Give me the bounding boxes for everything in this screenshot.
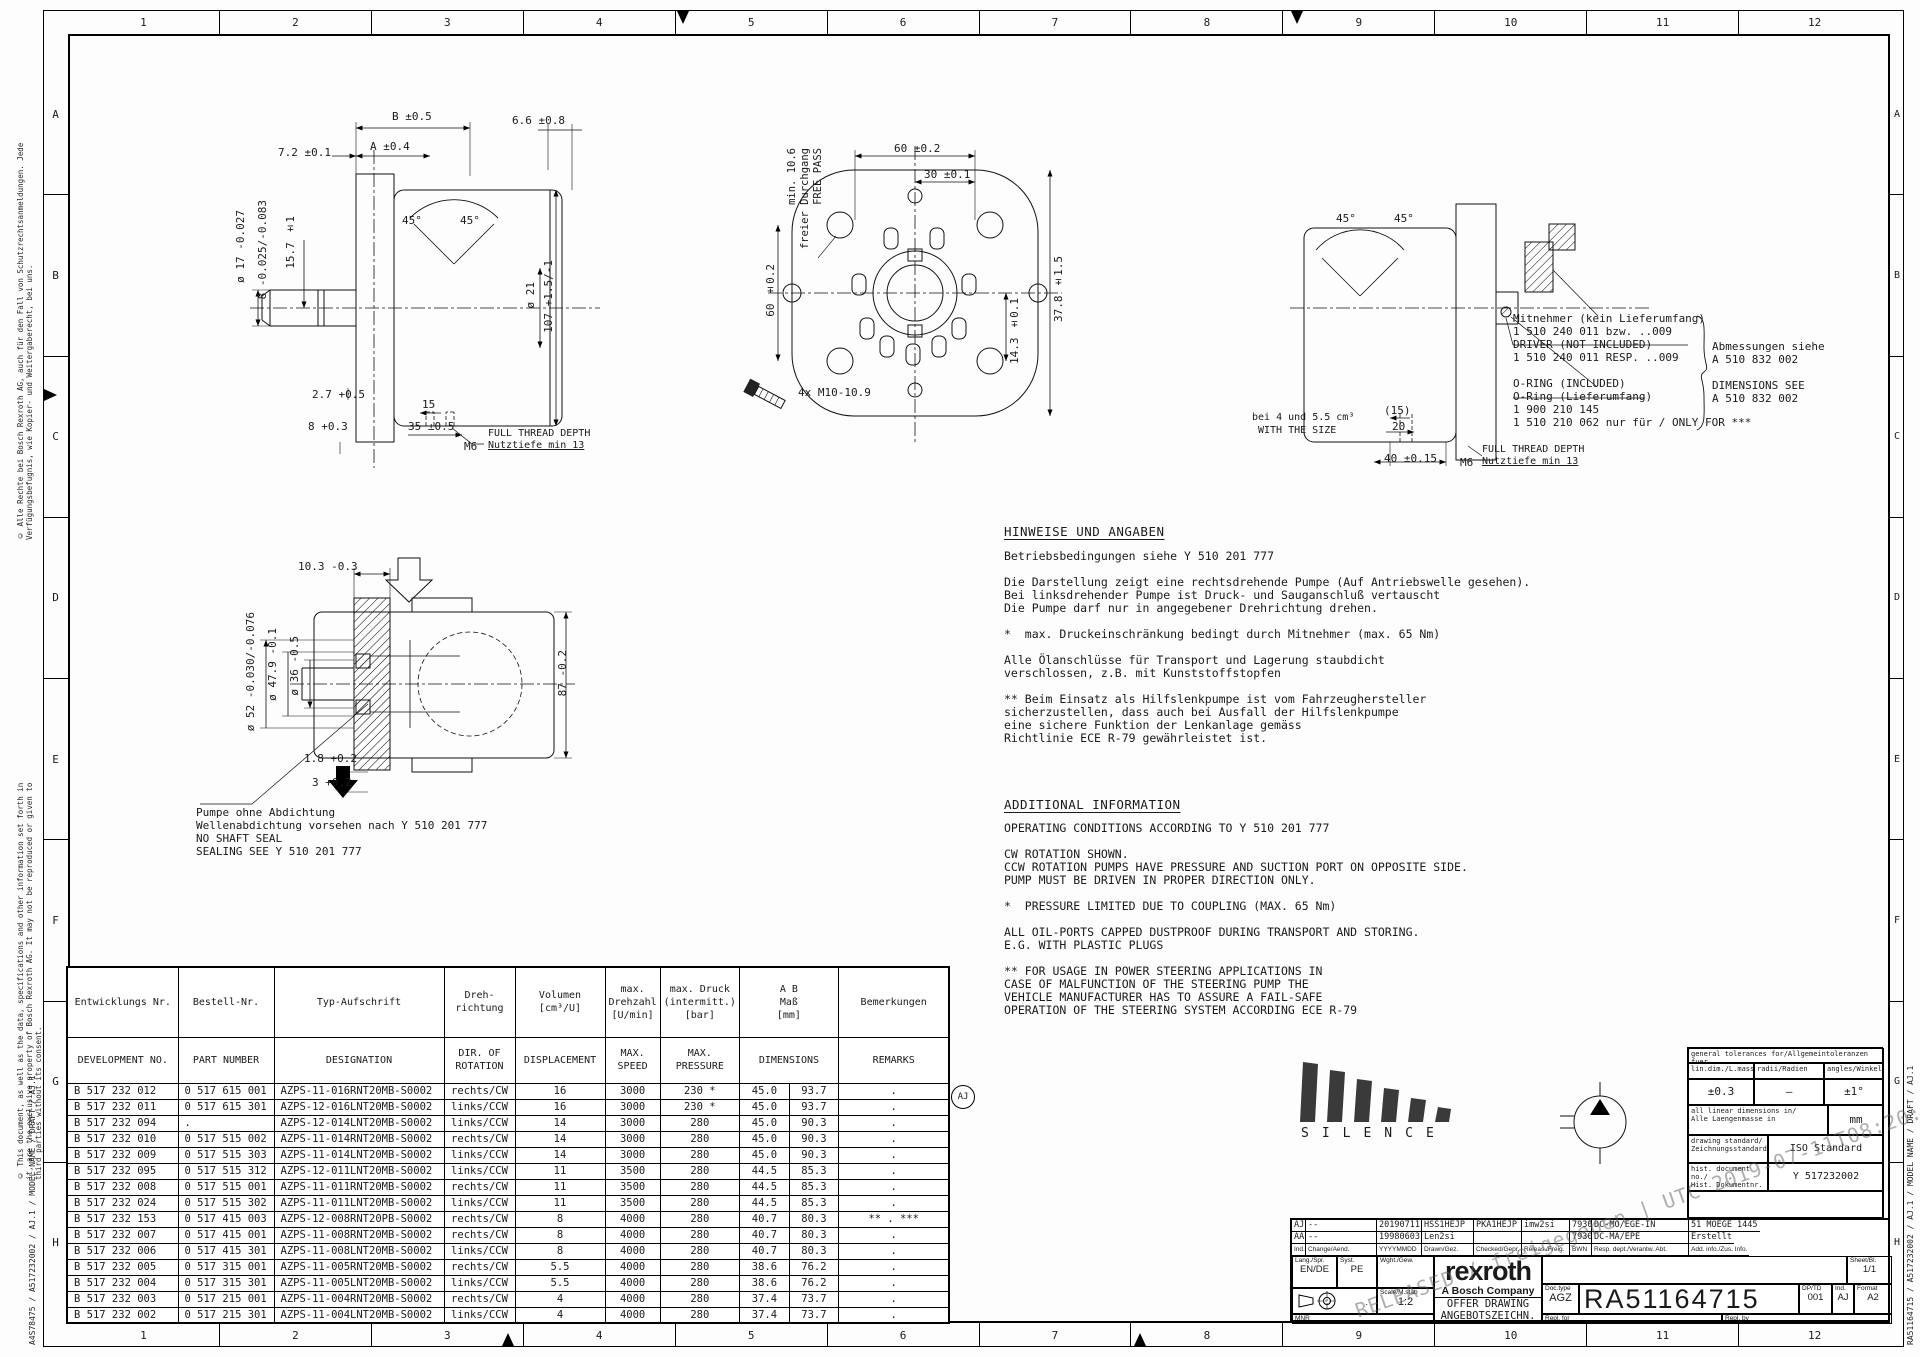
rev-change: -- <box>1306 1232 1377 1244</box>
table-cell: . <box>838 1243 949 1259</box>
table-cell: 16 <box>515 1083 605 1099</box>
table-cell: 280 <box>660 1275 739 1291</box>
doctype-value: AGZ <box>1543 1292 1578 1304</box>
table-header-english: DEVELOPMENT NO. PART NUMBER DESIGNATION … <box>67 1037 949 1083</box>
table-cell: AZPS-11-005RNT20MB-S0002 <box>274 1259 444 1275</box>
table-cell: B 517 232 008 <box>67 1179 178 1195</box>
text-line: C <box>1890 356 1904 517</box>
table-cell: 280 <box>660 1147 739 1163</box>
dim-label: 2.7 +0.5 <box>312 388 365 401</box>
table-cell: 280 <box>660 1211 739 1227</box>
col-header: DISPLACEMENT <box>515 1037 605 1083</box>
silence-logo-text: SILENCE <box>1301 1126 1447 1141</box>
text-line: A <box>43 34 68 194</box>
table-cell: . <box>838 1179 949 1195</box>
table-cell: AZPS-11-008RNT20MB-S0002 <box>274 1227 444 1243</box>
table-cell: 0 517 415 003 <box>178 1211 274 1227</box>
dim-label: 60 ±0.2 <box>894 142 940 155</box>
table-cell: rechts/CW <box>444 1179 515 1195</box>
text-line: Abmessungen siehe <box>1712 340 1825 353</box>
table-cell: 280 <box>660 1291 739 1307</box>
table-cell: 85.3 <box>789 1179 838 1195</box>
table-cell: 40.7 <box>739 1211 789 1227</box>
table-cell: rechts/CW <box>444 1083 515 1099</box>
text-line: 6 <box>827 1323 979 1347</box>
col-header: DIMENSIONS <box>739 1037 838 1083</box>
dim-label: ø 36 -0.5 <box>288 636 301 696</box>
table-cell: B 517 232 003 <box>67 1291 178 1307</box>
text-line: 11 <box>1586 1323 1738 1347</box>
revision-row: AJ -- 20190711 HSS1HEJP PKA1HEJP imw2si … <box>1292 1220 1760 1232</box>
table-cell: links/CCW <box>444 1163 515 1179</box>
rev-change: -- <box>1306 1220 1377 1232</box>
col-header: Typ-Aufschrift <box>274 967 444 1037</box>
dim-label: ø 21 <box>524 282 537 309</box>
table-row: B 517 232 0040 517 315 301AZPS-11-005LNT… <box>67 1275 949 1291</box>
table-cell: 4000 <box>605 1275 660 1291</box>
table-cell: 80.3 <box>789 1227 838 1243</box>
rev-info: Erstellt <box>1689 1232 1734 1244</box>
dim-label: M6 <box>1460 456 1473 469</box>
additional-info-lines: OPERATING CONDITIONS ACCORDING TO Y 510 … <box>1004 822 1468 1017</box>
table-cell: 90.3 <box>789 1115 838 1131</box>
repl-for-label: Repl. for <box>1542 1314 1722 1324</box>
table-cell: 4000 <box>605 1211 660 1227</box>
revision-bubble: AJ <box>951 1085 975 1109</box>
text-line: 9 <box>1282 10 1434 34</box>
table-cell: links/CCW <box>444 1275 515 1291</box>
table-cell: AZPS-11-016RNT20MB-S0002 <box>274 1083 444 1099</box>
margin-code-left: A4S78475 / A517232002 / AJ.1 / MODEL NAM… <box>28 1120 37 1345</box>
text-line: C <box>43 356 68 517</box>
table-cell: 85.3 <box>789 1163 838 1179</box>
table-cell: 76.2 <box>789 1259 838 1275</box>
table-cell: 3000 <box>605 1115 660 1131</box>
table-cell: . <box>838 1083 949 1099</box>
table-cell: rechts/CW <box>444 1227 515 1243</box>
text-line: 10 <box>1434 1323 1586 1347</box>
table-cell: 73.7 <box>789 1307 838 1323</box>
text-line: 8 <box>1130 10 1282 34</box>
col-header: Bestell-Nr. <box>178 967 274 1037</box>
table-cell: 16 <box>515 1099 605 1115</box>
table-cell: 11 <box>515 1179 605 1195</box>
dim-label: 37.8 ±1.5 <box>1052 256 1065 322</box>
text-line: 8 <box>1130 1323 1282 1347</box>
table-cell: 0 517 415 301 <box>178 1243 274 1259</box>
table-cell: AZPS-11-014LNT20MB-S0002 <box>274 1147 444 1163</box>
table-cell: AZPS-11-004LNT20MB-S0002 <box>274 1307 444 1323</box>
text-line: * max. Druckeinschränkung bedingt durch … <box>1004 628 1530 641</box>
col-header: Volumen [cm³/U] <box>515 967 605 1037</box>
text-line: E <box>1890 678 1904 839</box>
dim-label: 10.3 -0.3 <box>298 560 358 573</box>
document-number: RA51164715 <box>1579 1284 1799 1314</box>
dim-label: WITH THE SIZE <box>1258 425 1336 436</box>
parts-table: B 517 232 0120 517 615 001AZPS-11-016RNT… <box>66 966 950 1324</box>
lang-label: Lang./Spr. <box>1293 1257 1336 1264</box>
dim-label: 8 -0.025/-0.083 <box>256 200 269 299</box>
dim-label: min. 10.6 <box>786 148 798 205</box>
table-cell: B 517 232 095 <box>67 1163 178 1179</box>
table-cell: 4000 <box>605 1291 660 1307</box>
table-row: B 517 232 0070 517 415 001AZPS-11-008RNT… <box>67 1227 949 1243</box>
table-cell: 0 517 315 301 <box>178 1275 274 1291</box>
table-cell: . <box>838 1307 949 1323</box>
syst-label: Syst. <box>1338 1257 1376 1264</box>
table-cell: 4000 <box>605 1307 660 1323</box>
tolerance-value: – <box>1754 1079 1824 1105</box>
text-line: 3 <box>371 1323 523 1347</box>
dim-label: ø 47.9 -0.1 <box>266 628 279 701</box>
rev-label: Ind. <box>1292 1244 1306 1256</box>
dim-label: 3 +0.2 <box>312 776 352 789</box>
rev-info: 51 MOEGE 1445 <box>1689 1220 1760 1232</box>
grid-band-bottom: 123456789101112 <box>68 1323 1890 1347</box>
text-line <box>1712 366 1825 379</box>
table-cell: AZPS-12-011LNT20MB-S0002 <box>274 1163 444 1179</box>
col-header: Bemerkungen <box>838 967 949 1037</box>
table-cell: 280 <box>660 1307 739 1323</box>
text-line: 10 <box>1434 10 1586 34</box>
text-line: Wellenabdichtung vorsehen nach Y 510 201… <box>196 819 487 832</box>
rev-label: YYYYMMDD <box>1377 1244 1422 1256</box>
table-cell: 3000 <box>605 1099 660 1115</box>
text-line: SEALING SEE Y 510 201 777 <box>196 845 487 858</box>
table-cell: 45.0 <box>739 1099 789 1115</box>
rev-label: Add. info./Zus. Info. <box>1689 1244 1749 1256</box>
table-cell: 45.0 <box>739 1083 789 1099</box>
table-row: B 517 232 0060 517 415 301AZPS-11-008LNT… <box>67 1243 949 1259</box>
table-cell: 0 517 315 001 <box>178 1259 274 1275</box>
table-cell: 45.0 <box>739 1115 789 1131</box>
text-line: 1 510 240 011 bzw. ..009 <box>1513 325 1751 338</box>
table-cell: AZPS-12-016LNT20MB-S0002 <box>274 1099 444 1115</box>
table-cell: . <box>838 1115 949 1131</box>
dp-label: DP/TD <box>1800 1285 1831 1292</box>
tolerance-value: ±0.3 <box>1688 1079 1754 1105</box>
table-cell: links/CCW <box>444 1307 515 1323</box>
dim-label: ø 52 -0.030/-0.076 <box>244 612 257 731</box>
col-header: max. Druck (intermitt.) [bar] <box>660 967 739 1037</box>
text-line: 5 <box>675 1323 827 1347</box>
grid-band-left: ABCDEFGH <box>43 34 68 1323</box>
table-cell: AZPS-11-005LNT20MB-S0002 <box>274 1275 444 1291</box>
text-line: 11 <box>1586 10 1738 34</box>
table-cell: 4 <box>515 1291 605 1307</box>
text-line: B <box>43 194 68 355</box>
table-cell: B 517 232 005 <box>67 1259 178 1275</box>
text-line: A 510 832 002 <box>1712 353 1825 366</box>
table-cell: rechts/CW <box>444 1131 515 1147</box>
col-header: MAX. SPEED <box>605 1037 660 1083</box>
table-cell: 4000 <box>605 1227 660 1243</box>
shaft-seal-note: Pumpe ohne AbdichtungWellenabdichtung vo… <box>196 806 487 858</box>
text-line: 9 <box>1282 1323 1434 1347</box>
rev-checked: PKA1HEJP <box>1474 1220 1522 1232</box>
additional-info-heading: ADDITIONAL INFORMATION <box>1004 797 1181 812</box>
table-cell: 93.7 <box>789 1099 838 1115</box>
table-row: B 517 232 0050 517 315 001AZPS-11-005RNT… <box>67 1259 949 1275</box>
dim-label: B ±0.5 <box>392 110 432 123</box>
text-line: 3 <box>371 10 523 34</box>
table-cell: 280 <box>660 1163 739 1179</box>
table-cell: B 517 232 004 <box>67 1275 178 1291</box>
table-cell: 38.6 <box>739 1275 789 1291</box>
text-line: 2 <box>219 10 371 34</box>
table-cell: AZPS-11-008LNT20MB-S0002 <box>274 1243 444 1259</box>
text-line: F <box>43 839 68 1000</box>
dim-label: 15.7 ±1 <box>284 216 297 269</box>
table-cell: 45.0 <box>739 1131 789 1147</box>
table-cell: 90.3 <box>789 1147 838 1163</box>
table-row: B 517 232 094.AZPS-12-014LNT20MB-S0002li… <box>67 1115 949 1131</box>
dim-label: bei 4 und 5.5 cm³ <box>1252 412 1354 423</box>
dim-label: 15 <box>422 398 435 411</box>
table-cell: 280 <box>660 1179 739 1195</box>
table-cell: 14 <box>515 1131 605 1147</box>
format-label: Format <box>1855 1285 1891 1292</box>
table-cell: links/CCW <box>444 1099 515 1115</box>
hinweise-heading: HINWEISE UND ANGABEN <box>1004 524 1165 539</box>
repl-by-label: Repl. by <box>1722 1314 1892 1324</box>
dim-label: 45° <box>402 214 422 227</box>
dim-label: 87 -0.2 <box>556 650 569 696</box>
table-cell: 230 * <box>660 1099 739 1115</box>
table-cell: 37.4 <box>739 1291 789 1307</box>
table-cell: 0 517 215 301 <box>178 1307 274 1323</box>
table-cell: rechts/CW <box>444 1291 515 1307</box>
col-header: DIR. OF ROTATION <box>444 1037 515 1083</box>
ind-label: Ind. <box>1833 1285 1853 1292</box>
table-cell: 5.5 <box>515 1275 605 1291</box>
tolerance-header: radii/Radien <box>1754 1063 1824 1079</box>
table-row: B 517 232 0950 517 515 312AZPS-12-011LNT… <box>67 1163 949 1179</box>
text-line: H <box>1890 1162 1904 1323</box>
table-cell: 0 517 615 001 <box>178 1083 274 1099</box>
tolerance-title: general tolerances for/Allgemeintoleranz… <box>1688 1048 1884 1063</box>
text-line: A 510 832 002 <box>1712 392 1825 405</box>
text-line: verschlossen, z.B. mit Kunststoffstopfen <box>1004 667 1530 680</box>
table-cell: . <box>838 1227 949 1243</box>
rev-drawn: HSS1HEJP <box>1422 1220 1474 1232</box>
table-cell: 8 <box>515 1227 605 1243</box>
table-cell: B 517 232 024 <box>67 1195 178 1211</box>
table-cell: 44.5 <box>739 1163 789 1179</box>
text-line: 7 <box>979 10 1131 34</box>
text-line: Pumpe ohne Abdichtung <box>196 806 487 819</box>
tolerance-value: ±1° <box>1824 1079 1884 1105</box>
dim-label: 35 ±0.5 <box>408 420 454 433</box>
table-row: B 517 232 0100 517 515 002AZPS-11-014RNT… <box>67 1131 949 1147</box>
table-cell: B 517 232 010 <box>67 1131 178 1147</box>
col-header: Dreh- richtung <box>444 967 515 1037</box>
dim-label: 7.2 ±0.1 <box>278 146 331 159</box>
table-cell: 3000 <box>605 1083 660 1099</box>
table-cell: rechts/CW <box>444 1211 515 1227</box>
dim-label: 45° <box>1336 212 1356 225</box>
dim-label: 40 ±0.15 <box>1384 452 1437 465</box>
dim-label: FULL THREAD DEPTH <box>488 428 590 439</box>
table-cell: 0 517 515 302 <box>178 1195 274 1211</box>
dimensions-see-note: Abmessungen sieheA 510 832 002DIMENSIONS… <box>1712 340 1825 405</box>
text-line: A <box>1890 34 1904 194</box>
dim-label: Nutztiefe min 13 <box>488 440 584 451</box>
table-cell: 73.7 <box>789 1291 838 1307</box>
dim-label: FULL THREAD DEPTH <box>1482 444 1584 455</box>
table-cell: 280 <box>660 1115 739 1131</box>
copyright-note-de: © Alle Rechte bei Bosch Rexroth AG, auch… <box>16 140 46 540</box>
table-cell: . <box>838 1275 949 1291</box>
table-cell: B 517 232 006 <box>67 1243 178 1259</box>
table-cell: 44.5 <box>739 1195 789 1211</box>
dim-label: M6 <box>464 440 477 453</box>
table-cell: 8 <box>515 1243 605 1259</box>
text-line: F <box>1890 839 1904 1000</box>
table-cell: AZPS-11-004RNT20MB-S0002 <box>274 1291 444 1307</box>
table-cell: 37.4 <box>739 1307 789 1323</box>
text-line: 7 <box>979 1323 1131 1347</box>
text-line: PUMP MUST BE DRIVEN IN PROPER DIRECTION … <box>1004 874 1468 887</box>
margin-code-right: RA51164715 / A517232002 / AJ.1 / MODEL N… <box>1906 1050 1915 1345</box>
dim-label: 60 ±0.2 <box>764 264 777 317</box>
text-line: 1 <box>68 1323 219 1347</box>
table-cell: links/CCW <box>444 1243 515 1259</box>
text-line: NO SHAFT SEAL <box>196 832 487 845</box>
table-cell: . <box>178 1115 274 1131</box>
table-row: B 517 232 0110 517 615 301AZPS-12-016LNT… <box>67 1099 949 1115</box>
text-line: E <box>43 678 68 839</box>
text-line: * PRESSURE LIMITED DUE TO COUPLING (MAX.… <box>1004 900 1468 913</box>
table-cell: 3500 <box>605 1163 660 1179</box>
text-line: 6 <box>827 10 979 34</box>
dim-label: 8 +0.3 <box>308 420 348 433</box>
table-cell: 230 * <box>660 1083 739 1099</box>
col-header: DEVELOPMENT NO. <box>67 1037 178 1083</box>
sheet-label: Sheet/Bl. <box>1848 1257 1891 1264</box>
table-cell: AZPS-11-011LNT20MB-S0002 <box>274 1195 444 1211</box>
table-cell: 80.3 <box>789 1211 838 1227</box>
table-cell: 14 <box>515 1147 605 1163</box>
table-cell: B 517 232 007 <box>67 1227 178 1243</box>
col-header: DESIGNATION <box>274 1037 444 1083</box>
table-cell: B 517 232 094 <box>67 1115 178 1131</box>
table-row: B 517 232 1530 517 415 003AZPS-12-008RNT… <box>67 1211 949 1227</box>
table-cell: 80.3 <box>789 1243 838 1259</box>
table-cell: 8 <box>515 1211 605 1227</box>
weight-label: Wght./Gew. <box>1378 1257 1433 1264</box>
text-line: D <box>1890 517 1904 678</box>
hinweise-lines: Betriebsbedingungen siehe Y 510 201 777D… <box>1004 550 1530 745</box>
text-line: 12 <box>1738 1323 1890 1347</box>
table-row: B 517 232 0030 517 215 001AZPS-11-004RNT… <box>67 1291 949 1307</box>
table-cell: 0 517 515 303 <box>178 1147 274 1163</box>
dim-label: 45° <box>1394 212 1414 225</box>
table-cell: AZPS-11-011RNT20MB-S0002 <box>274 1179 444 1195</box>
engineering-drawing-sheet: { "frame": { "columns": ["1","2","3","4"… <box>0 0 1920 1357</box>
dim-label: freier Durchgang <box>799 148 811 249</box>
text-line: OPERATION OF THE STEERING SYSTEM ACCORDI… <box>1004 1004 1468 1017</box>
table-cell: B 517 232 011 <box>67 1099 178 1115</box>
table-cell: 280 <box>660 1259 739 1275</box>
rev-ind: AA <box>1292 1232 1306 1244</box>
text-line: Mitnehmer (kein Lieferumfang) <box>1513 312 1751 325</box>
table-cell: 76.2 <box>789 1275 838 1291</box>
text-line: D <box>43 517 68 678</box>
table-header-german: Entwicklungs Nr. Bestell-Nr. Typ-Aufschr… <box>67 967 949 1037</box>
table-cell: . <box>838 1163 949 1179</box>
col-header: max. Drehzahl [U/min] <box>605 967 660 1037</box>
rev-label: Drawn/Gez. <box>1422 1244 1474 1256</box>
dim-label: 107 +1.5/-1 <box>542 260 555 333</box>
table-cell: 3000 <box>605 1147 660 1163</box>
format-value: A2 <box>1855 1292 1891 1303</box>
col-header: MAX. PRESSURE <box>660 1037 739 1083</box>
table-cell: AZPS-12-008RNT20PB-S0002 <box>274 1211 444 1227</box>
text-line: G <box>1890 1001 1904 1162</box>
text-line: 2 <box>219 1323 371 1347</box>
table-cell: 0 517 215 001 <box>178 1291 274 1307</box>
col-header: REMARKS <box>838 1037 949 1083</box>
table-cell: 11 <box>515 1195 605 1211</box>
table-cell: 38.6 <box>739 1259 789 1275</box>
text-line: 1 <box>68 10 219 34</box>
text-line: E.G. WITH PLASTIC PLUGS <box>1004 939 1468 952</box>
table-cell: 11 <box>515 1163 605 1179</box>
text-line: 5 <box>675 10 827 34</box>
dim-label: 14.3 ±0.1 <box>1008 298 1021 364</box>
dim-label: (15) <box>1384 404 1411 417</box>
text-line: Richtlinie ECE R-79 gewährleistet ist. <box>1004 732 1530 745</box>
table-cell: ** . *** <box>838 1211 949 1227</box>
table-cell: 0 517 515 002 <box>178 1131 274 1147</box>
table-row: B 517 232 0020 517 215 301AZPS-11-004LNT… <box>67 1307 949 1323</box>
table-cell: 90.3 <box>789 1131 838 1147</box>
rev-ind: AJ <box>1292 1220 1306 1232</box>
text-line: 12 <box>1738 10 1890 34</box>
dim-label: Nutztiefe min 13 <box>1482 456 1578 467</box>
table-cell: links/CCW <box>444 1147 515 1163</box>
table-cell: 85.3 <box>789 1195 838 1211</box>
dim-label: FREE PASS <box>812 148 824 205</box>
table-cell: 4000 <box>605 1259 660 1275</box>
table-cell: . <box>838 1131 949 1147</box>
table-cell: 14 <box>515 1115 605 1131</box>
rev-date: 20190711 <box>1377 1220 1422 1232</box>
linear-dims-label: all linear dimensions in/ Alle Laengenma… <box>1688 1105 1828 1135</box>
table-cell: 0 517 515 001 <box>178 1179 274 1195</box>
doctype-label: Doc.type <box>1543 1285 1578 1292</box>
rev-drawn: Len2si <box>1422 1232 1474 1244</box>
text-line: 1 510 210 062 nur für / ONLY FOR *** <box>1513 416 1751 429</box>
dim-label: 45° <box>460 214 480 227</box>
ind-value: AJ <box>1833 1292 1853 1303</box>
dim-label: 20 <box>1392 420 1405 433</box>
table-cell: 280 <box>660 1243 739 1259</box>
col-header: Entwicklungs Nr. <box>67 967 178 1037</box>
table-cell: AZPS-12-014LNT20MB-S0002 <box>274 1115 444 1131</box>
lang-value: EN/DE <box>1293 1264 1336 1275</box>
table-cell: . <box>838 1099 949 1115</box>
dim-label: 6.6 ±0.8 <box>512 114 565 127</box>
table-cell: . <box>838 1291 949 1307</box>
table-row: B 517 232 0120 517 615 001AZPS-11-016RNT… <box>67 1083 949 1099</box>
tolerance-header: lin.dim./L.masse <box>1688 1063 1754 1079</box>
text-line: H <box>43 1162 68 1323</box>
dim-label: 1.8 +0.2 <box>304 752 357 765</box>
text-line: G <box>43 1001 68 1162</box>
rev-date: 19980603 <box>1377 1232 1422 1244</box>
